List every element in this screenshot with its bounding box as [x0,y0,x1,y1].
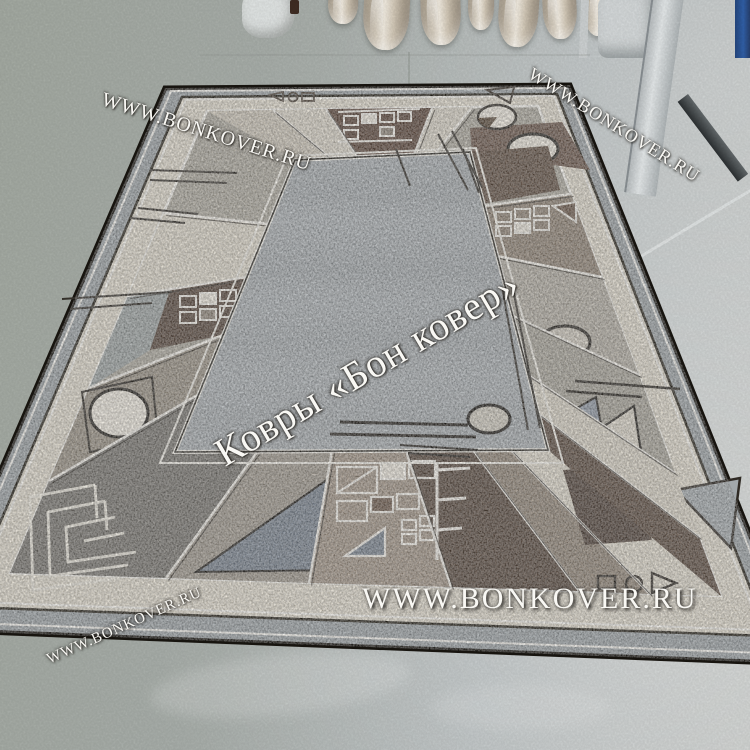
photo-stage: WWW.BONKOVER.RU WWW.BONKOVER.RU Ковры «Б… [0,0,750,750]
watermark-bottom-url: WWW.BONKOVER.RU [362,582,698,616]
